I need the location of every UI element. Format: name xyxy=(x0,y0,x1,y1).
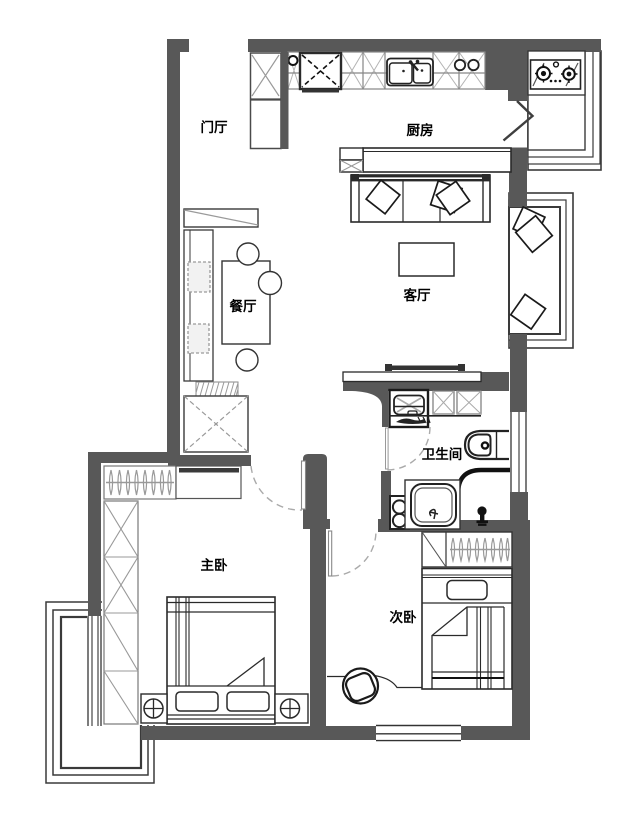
svg-text:厨房: 厨房 xyxy=(407,122,434,138)
svg-text:卫生间: 卫生间 xyxy=(422,446,463,462)
svg-text:客厅: 客厅 xyxy=(403,287,431,303)
svg-text:主卧: 主卧 xyxy=(201,557,228,573)
svg-text:门厅: 门厅 xyxy=(201,119,228,135)
svg-text:餐厅: 餐厅 xyxy=(229,298,257,314)
svg-text:次卧: 次卧 xyxy=(390,609,417,625)
